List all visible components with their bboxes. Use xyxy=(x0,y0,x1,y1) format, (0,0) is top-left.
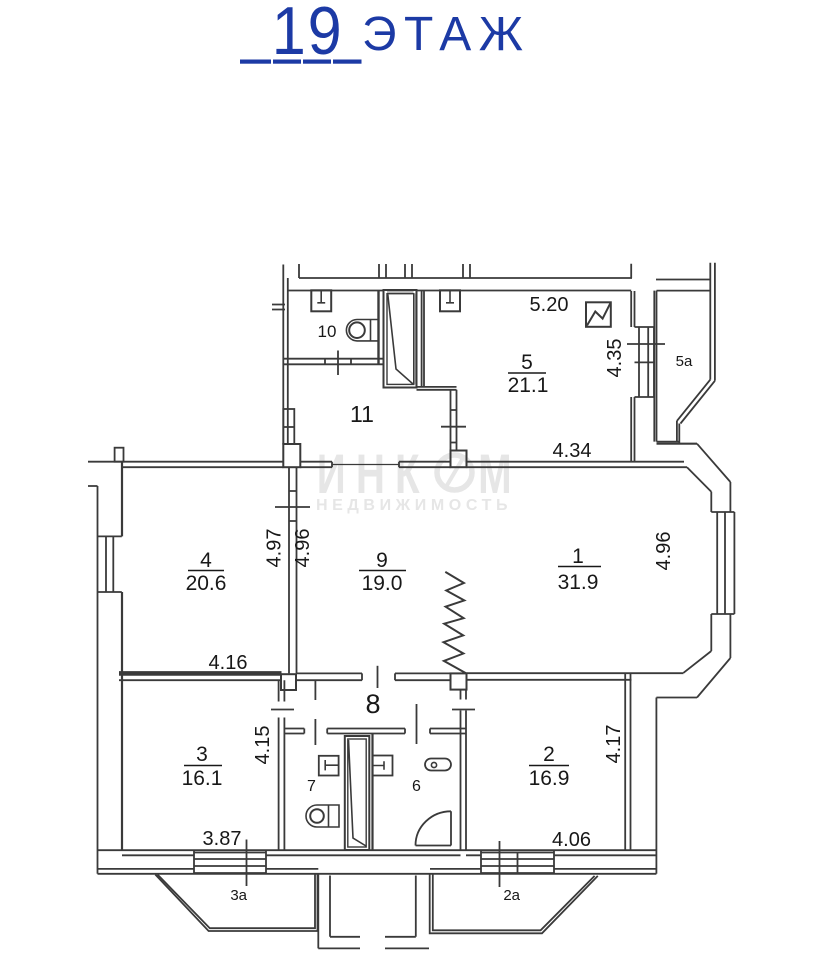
svg-text:4.16: 4.16 xyxy=(209,652,248,674)
svg-text:4.97: 4.97 xyxy=(264,529,286,568)
svg-text:НЕДВИЖИМОСТЬ: НЕДВИЖИМОСТЬ xyxy=(316,497,512,514)
svg-text:11: 11 xyxy=(350,401,374,427)
svg-text:2: 2 xyxy=(543,743,555,766)
svg-text:19.0: 19.0 xyxy=(362,572,403,595)
svg-text:3: 3 xyxy=(196,743,208,766)
svg-text:7: 7 xyxy=(307,778,316,795)
svg-text:16.9: 16.9 xyxy=(529,767,570,790)
svg-text:9: 9 xyxy=(376,549,388,572)
svg-text:4.06: 4.06 xyxy=(552,829,591,851)
svg-text:5: 5 xyxy=(521,351,533,374)
svg-text:4.96: 4.96 xyxy=(653,532,675,571)
svg-text:20.6: 20.6 xyxy=(186,572,227,595)
svg-text:1: 1 xyxy=(572,545,584,568)
svg-text:4.15: 4.15 xyxy=(252,726,274,765)
svg-text:4: 4 xyxy=(200,549,212,572)
svg-text:21.1: 21.1 xyxy=(508,374,549,397)
svg-text:6: 6 xyxy=(412,778,421,795)
svg-text:3.87: 3.87 xyxy=(203,828,242,850)
svg-text:4.17: 4.17 xyxy=(603,725,625,764)
svg-text:2a: 2a xyxy=(503,887,520,904)
svg-text:4.35: 4.35 xyxy=(604,339,626,378)
svg-text:5a: 5a xyxy=(676,353,693,370)
svg-text:8: 8 xyxy=(365,689,380,719)
svg-text:31.9: 31.9 xyxy=(558,571,599,594)
svg-text:16.1: 16.1 xyxy=(182,767,223,790)
svg-text:ЭТАЖ: ЭТАЖ xyxy=(362,8,531,61)
svg-text:3a: 3a xyxy=(230,887,247,904)
svg-text:5.20: 5.20 xyxy=(530,294,569,316)
svg-text:19: 19 xyxy=(272,0,344,69)
svg-text:4.96: 4.96 xyxy=(292,529,314,568)
svg-text:10: 10 xyxy=(318,322,337,341)
svg-text:4.34: 4.34 xyxy=(553,440,592,462)
